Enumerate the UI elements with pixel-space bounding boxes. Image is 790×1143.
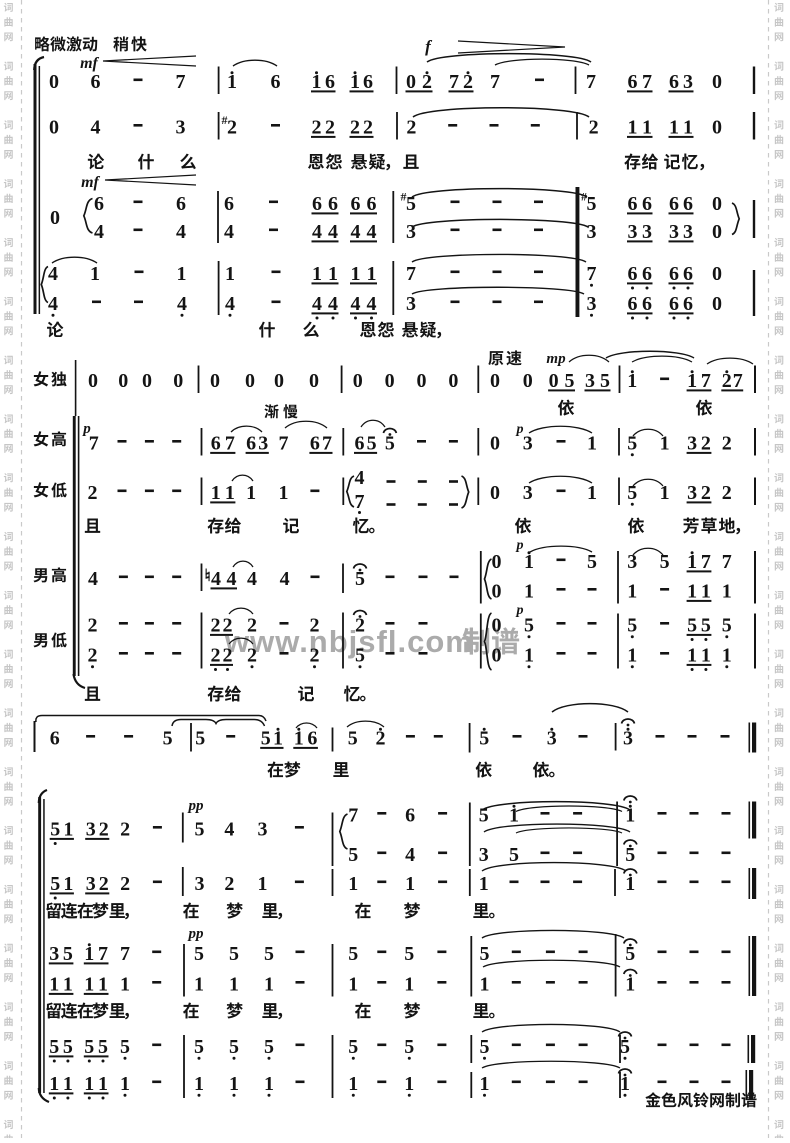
svg-text:5: 5 (63, 943, 73, 965)
svg-text:p: p (516, 603, 524, 618)
svg-text:p: p (516, 538, 524, 553)
svg-text:6: 6 (307, 728, 317, 750)
svg-text:4: 4 (367, 221, 377, 243)
svg-text:1: 1 (264, 1073, 274, 1095)
svg-text:7: 7 (176, 71, 186, 93)
svg-text:1: 1 (660, 482, 670, 504)
svg-text:1: 1 (348, 873, 358, 895)
svg-text:4: 4 (94, 221, 104, 243)
svg-text:0: 0 (210, 370, 220, 392)
svg-text:6: 6 (628, 263, 638, 285)
svg-text:3: 3 (628, 221, 638, 243)
svg-text:0: 0 (549, 370, 559, 392)
svg-text:6: 6 (669, 263, 679, 285)
svg-text:1: 1 (177, 263, 187, 285)
svg-text:2: 2 (325, 117, 335, 139)
svg-text:2: 2 (88, 615, 98, 637)
svg-text:2: 2 (722, 482, 732, 504)
svg-text:0: 0 (88, 370, 98, 392)
svg-text:6: 6 (246, 433, 256, 455)
svg-text:1: 1 (367, 263, 377, 285)
svg-text:5: 5 (348, 728, 358, 750)
svg-text:3: 3 (86, 819, 96, 841)
svg-text:5: 5 (194, 943, 204, 965)
svg-text:5: 5 (722, 615, 732, 637)
svg-text:3: 3 (49, 943, 59, 965)
svg-text:5: 5 (195, 728, 205, 750)
svg-text:2: 2 (120, 819, 130, 841)
svg-text:4: 4 (312, 221, 322, 243)
svg-text:#: # (401, 190, 407, 204)
svg-text:3: 3 (406, 293, 416, 315)
svg-text:0: 0 (712, 293, 722, 315)
svg-text:5: 5 (587, 193, 597, 215)
svg-text:5: 5 (565, 370, 575, 392)
svg-text:3: 3 (683, 221, 693, 243)
svg-text:1: 1 (194, 1073, 204, 1095)
svg-text:6: 6 (94, 193, 104, 215)
svg-text:1: 1 (194, 974, 204, 996)
svg-text:2: 2 (350, 117, 360, 139)
svg-text:3: 3 (687, 482, 697, 504)
svg-text:6: 6 (642, 263, 652, 285)
svg-text:p: p (516, 422, 524, 437)
svg-text:1: 1 (63, 1073, 73, 1095)
svg-text:2: 2 (88, 645, 98, 667)
svg-text:1: 1 (405, 873, 415, 895)
svg-text:1: 1 (404, 974, 414, 996)
svg-text:1: 1 (587, 482, 597, 504)
svg-text:7: 7 (722, 551, 732, 573)
svg-text:2: 2 (310, 615, 320, 637)
svg-text:6: 6 (312, 193, 322, 215)
svg-text:mp: mp (546, 351, 566, 367)
svg-text:2: 2 (363, 117, 373, 139)
svg-text:1: 1 (628, 117, 638, 139)
svg-text:2: 2 (223, 615, 233, 637)
svg-text:1: 1 (669, 117, 679, 139)
svg-text:0: 0 (406, 71, 416, 93)
svg-text:2: 2 (88, 482, 98, 504)
svg-text:6: 6 (642, 193, 652, 215)
svg-text:1: 1 (211, 482, 221, 504)
svg-text:5: 5 (195, 819, 205, 841)
svg-text:0: 0 (712, 221, 722, 243)
svg-text:5: 5 (524, 615, 534, 637)
svg-text:6: 6 (367, 193, 377, 215)
svg-text:7: 7 (98, 943, 108, 965)
svg-text:0: 0 (492, 581, 502, 603)
svg-text:0: 0 (490, 433, 500, 455)
svg-text:#: # (222, 113, 228, 127)
svg-text:6: 6 (351, 193, 361, 215)
svg-text:7: 7 (642, 71, 652, 93)
svg-text:4: 4 (247, 568, 257, 590)
svg-text:5: 5 (509, 844, 519, 866)
svg-text:6: 6 (405, 805, 415, 827)
svg-text:5: 5 (701, 615, 711, 637)
svg-text:5: 5 (261, 728, 271, 750)
svg-text:2: 2 (211, 615, 221, 637)
svg-text:5: 5 (98, 1036, 108, 1058)
svg-text:1: 1 (524, 581, 534, 603)
svg-text:1: 1 (722, 645, 732, 667)
svg-text:7: 7 (322, 433, 332, 455)
svg-text:6: 6 (669, 71, 679, 93)
svg-text:3: 3 (86, 873, 96, 895)
svg-text:1: 1 (627, 581, 637, 603)
svg-text:0: 0 (353, 370, 363, 392)
svg-text:4: 4 (351, 221, 361, 243)
svg-text:4: 4 (328, 221, 338, 243)
svg-text:6: 6 (683, 263, 693, 285)
svg-text:5: 5 (163, 728, 173, 750)
svg-text:4: 4 (48, 263, 58, 285)
svg-text:1: 1 (229, 1073, 239, 1095)
svg-text:0: 0 (49, 71, 59, 93)
svg-text:4: 4 (211, 568, 221, 590)
svg-text:1: 1 (348, 1073, 358, 1095)
svg-text:1: 1 (258, 873, 268, 895)
svg-text:7: 7 (120, 943, 130, 965)
svg-text:6: 6 (325, 71, 335, 93)
svg-text:2: 2 (589, 117, 599, 139)
svg-text:1: 1 (49, 1073, 59, 1095)
svg-text:1: 1 (701, 581, 711, 603)
svg-text:5: 5 (264, 943, 274, 965)
svg-text:6: 6 (628, 293, 638, 315)
svg-text:5: 5 (229, 1036, 239, 1058)
svg-text:2: 2 (99, 819, 109, 841)
svg-text:0: 0 (49, 117, 59, 139)
svg-text:4: 4 (405, 844, 415, 866)
svg-text:6: 6 (642, 293, 652, 315)
svg-text:2: 2 (701, 482, 711, 504)
svg-text:7: 7 (490, 71, 500, 93)
svg-text:7: 7 (348, 805, 358, 827)
svg-text:1: 1 (229, 974, 239, 996)
svg-text:4: 4 (224, 819, 234, 841)
svg-text:4: 4 (177, 293, 187, 315)
svg-text:0: 0 (492, 645, 502, 667)
svg-text:5: 5 (367, 433, 377, 455)
svg-text:1: 1 (49, 974, 59, 996)
svg-text:5: 5 (50, 819, 60, 841)
svg-text:1: 1 (90, 263, 100, 285)
svg-text:5: 5 (348, 1036, 358, 1058)
svg-text:5: 5 (355, 645, 365, 667)
svg-text:5: 5 (627, 433, 637, 455)
svg-text:4: 4 (176, 221, 186, 243)
svg-text:www.nbjsfl.com: www.nbjsfl.com (224, 624, 474, 659)
svg-text:6: 6 (683, 293, 693, 315)
svg-text:2: 2 (224, 873, 234, 895)
svg-text:4: 4 (280, 568, 290, 590)
svg-text:5: 5 (627, 482, 637, 504)
svg-text:0: 0 (492, 551, 502, 573)
svg-text:3: 3 (523, 482, 533, 504)
svg-text:1: 1 (264, 974, 274, 996)
svg-text:3: 3 (523, 433, 533, 455)
svg-text:4: 4 (227, 568, 237, 590)
svg-text:2: 2 (722, 433, 732, 455)
svg-text:3: 3 (687, 433, 697, 455)
svg-text:5: 5 (480, 1036, 490, 1058)
svg-text:1: 1 (660, 433, 670, 455)
svg-text:6: 6 (50, 728, 60, 750)
svg-text:1: 1 (701, 645, 711, 667)
svg-text:5: 5 (480, 943, 490, 965)
svg-text:5: 5 (627, 615, 637, 637)
svg-text:3: 3 (195, 873, 205, 895)
svg-text:3: 3 (479, 844, 489, 866)
svg-text:1: 1 (98, 974, 108, 996)
svg-text:3: 3 (683, 71, 693, 93)
svg-text:1: 1 (348, 974, 358, 996)
svg-text:7: 7 (406, 263, 416, 285)
svg-text:7: 7 (225, 433, 235, 455)
svg-text:5: 5 (120, 1036, 130, 1058)
svg-text:mf: mf (80, 55, 99, 72)
svg-text:1: 1 (84, 1073, 94, 1095)
svg-text:5: 5 (49, 1036, 59, 1058)
svg-text:3: 3 (258, 819, 268, 841)
svg-text:6: 6 (224, 193, 234, 215)
svg-text:6: 6 (271, 71, 281, 93)
svg-text:4: 4 (355, 467, 365, 489)
svg-text:2: 2 (310, 645, 320, 667)
svg-text:0: 0 (417, 370, 427, 392)
svg-text:6: 6 (328, 193, 338, 215)
svg-text:1: 1 (480, 1073, 490, 1095)
svg-text:2: 2 (120, 873, 130, 895)
svg-text:0: 0 (50, 207, 60, 229)
svg-text:2: 2 (223, 645, 233, 667)
svg-text:2: 2 (247, 615, 257, 637)
svg-text:4: 4 (225, 293, 235, 315)
svg-text:3: 3 (587, 221, 597, 243)
svg-text:4: 4 (224, 221, 234, 243)
svg-text:5: 5 (84, 1036, 94, 1058)
svg-text:4: 4 (48, 293, 58, 315)
svg-text:7: 7 (89, 433, 99, 455)
svg-text:pp: pp (187, 926, 205, 942)
svg-text:1: 1 (587, 433, 597, 455)
svg-text:4: 4 (328, 293, 338, 315)
svg-text:1: 1 (687, 645, 697, 667)
svg-text:6: 6 (211, 433, 221, 455)
svg-text:0: 0 (712, 193, 722, 215)
svg-text:3: 3 (176, 117, 186, 139)
svg-text:6: 6 (176, 193, 186, 215)
svg-text:4: 4 (312, 293, 322, 315)
svg-text:7: 7 (587, 263, 597, 285)
svg-text:2: 2 (227, 117, 237, 139)
svg-text:1: 1 (722, 581, 732, 603)
svg-text:5: 5 (660, 551, 670, 573)
svg-text:2: 2 (247, 645, 257, 667)
svg-text:0: 0 (448, 370, 458, 392)
svg-text:1: 1 (98, 1073, 108, 1095)
svg-text:1: 1 (404, 1073, 414, 1095)
svg-text:1: 1 (312, 263, 322, 285)
svg-text:6: 6 (628, 193, 638, 215)
svg-text:2: 2 (312, 117, 322, 139)
svg-text:0: 0 (173, 370, 183, 392)
svg-text:0: 0 (712, 263, 722, 285)
svg-text:0: 0 (142, 370, 152, 392)
svg-text:6: 6 (355, 433, 365, 455)
svg-text:1: 1 (279, 482, 289, 504)
svg-text:5: 5 (348, 943, 358, 965)
svg-text:2: 2 (211, 645, 221, 667)
svg-text:5: 5 (264, 1036, 274, 1058)
svg-text:0: 0 (309, 370, 319, 392)
svg-text:2: 2 (99, 873, 109, 895)
svg-text:5: 5 (404, 1036, 414, 1058)
svg-text:1: 1 (687, 581, 697, 603)
svg-text:1: 1 (683, 117, 693, 139)
svg-text:4: 4 (91, 117, 101, 139)
svg-text:0: 0 (490, 482, 500, 504)
svg-text:0: 0 (712, 71, 722, 93)
svg-text:1: 1 (351, 263, 361, 285)
svg-text:5: 5 (229, 943, 239, 965)
svg-text:6: 6 (669, 293, 679, 315)
svg-text:1: 1 (246, 482, 256, 504)
svg-text:2: 2 (406, 117, 416, 139)
svg-text:6: 6 (91, 71, 101, 93)
svg-text:1: 1 (120, 1073, 130, 1095)
svg-text:3: 3 (406, 221, 416, 243)
svg-text:5: 5 (50, 873, 60, 895)
svg-text:3: 3 (585, 370, 595, 392)
svg-text:1: 1 (120, 974, 130, 996)
svg-text:1: 1 (328, 263, 338, 285)
svg-text:0: 0 (492, 615, 502, 637)
svg-text:1: 1 (524, 645, 534, 667)
svg-text:7: 7 (701, 370, 711, 392)
svg-text:0: 0 (523, 370, 533, 392)
svg-text:6: 6 (363, 71, 373, 93)
svg-text:7: 7 (449, 71, 459, 93)
svg-text:1: 1 (225, 263, 235, 285)
svg-text:7: 7 (733, 370, 743, 392)
svg-text:1: 1 (642, 117, 652, 139)
svg-text:4: 4 (367, 293, 377, 315)
svg-text:0: 0 (245, 370, 255, 392)
svg-text:5: 5 (348, 844, 358, 866)
svg-text:7: 7 (279, 433, 289, 455)
svg-text:3: 3 (642, 221, 652, 243)
svg-text:5: 5 (687, 615, 697, 637)
svg-text:1: 1 (63, 974, 73, 996)
svg-text:0: 0 (385, 370, 395, 392)
svg-text:2: 2 (701, 433, 711, 455)
svg-text:0: 0 (712, 117, 722, 139)
svg-text:5: 5 (194, 1036, 204, 1058)
svg-text:1: 1 (480, 974, 490, 996)
svg-text:3: 3 (669, 221, 679, 243)
svg-text:3: 3 (587, 293, 597, 315)
svg-text:7: 7 (355, 491, 365, 513)
svg-text:6: 6 (310, 433, 320, 455)
svg-text:5: 5 (587, 551, 597, 573)
svg-text:mf: mf (81, 174, 100, 191)
svg-text:5: 5 (404, 943, 414, 965)
svg-text:3: 3 (258, 433, 268, 455)
svg-text:1: 1 (225, 482, 235, 504)
svg-text:3: 3 (627, 551, 637, 573)
svg-text:0: 0 (274, 370, 284, 392)
svg-text:4: 4 (88, 568, 98, 590)
svg-text:5: 5 (63, 1036, 73, 1058)
svg-text:7: 7 (586, 71, 596, 93)
svg-text:5: 5 (600, 370, 610, 392)
svg-text:1: 1 (627, 645, 637, 667)
svg-text:1: 1 (63, 819, 73, 841)
svg-text:0: 0 (118, 370, 128, 392)
svg-text:7: 7 (701, 551, 711, 573)
svg-text:6: 6 (683, 193, 693, 215)
svg-text:4: 4 (351, 293, 361, 315)
svg-text:6: 6 (669, 193, 679, 215)
svg-text:1: 1 (479, 873, 489, 895)
svg-text:0: 0 (490, 370, 500, 392)
svg-text:6: 6 (628, 71, 638, 93)
svg-text:1: 1 (84, 974, 94, 996)
svg-text:1: 1 (63, 873, 73, 895)
svg-text:pp: pp (187, 798, 205, 814)
